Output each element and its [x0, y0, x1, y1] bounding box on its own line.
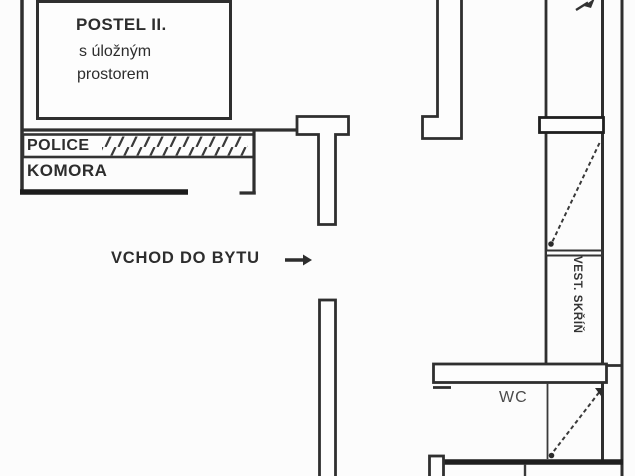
door-swing-upper-icon — [552, 143, 600, 244]
shelf-label: POLICE — [27, 137, 90, 155]
shelf-hatch — [102, 137, 248, 156]
entrance-arrow-icon — [285, 255, 312, 266]
wall-lower-left — [320, 300, 336, 476]
wardrobe-label: VEST. SKŘÍŇ — [571, 256, 583, 368]
wall-door-jamb-bottom — [430, 456, 444, 476]
bed-title-label: POSTEL II. — [76, 15, 167, 35]
wall-top-middle — [423, 0, 462, 139]
door-swing-wc-corner — [595, 388, 603, 398]
bed-subtitle-line2: prostorem — [77, 66, 149, 84]
door-swing-upper-end — [548, 241, 554, 247]
wardrobe-divider — [546, 251, 602, 256]
door-swing-wc-end — [549, 453, 555, 459]
top-door-arrow-icon — [576, 0, 595, 10]
floor-plan: POSTEL II. s úložným prostorem POLICE KO… — [0, 0, 635, 476]
chamber-label: KOMORA — [27, 161, 107, 181]
entrance-label: VCHOD DO BYTU — [111, 249, 260, 268]
wall-entry-tee — [297, 117, 349, 225]
wardrobe-shelf-bar — [540, 118, 604, 133]
bed-subtitle-line1: s úložným — [79, 43, 151, 61]
wc-label: WC — [499, 389, 528, 407]
door-swing-wc-icon — [552, 393, 599, 454]
